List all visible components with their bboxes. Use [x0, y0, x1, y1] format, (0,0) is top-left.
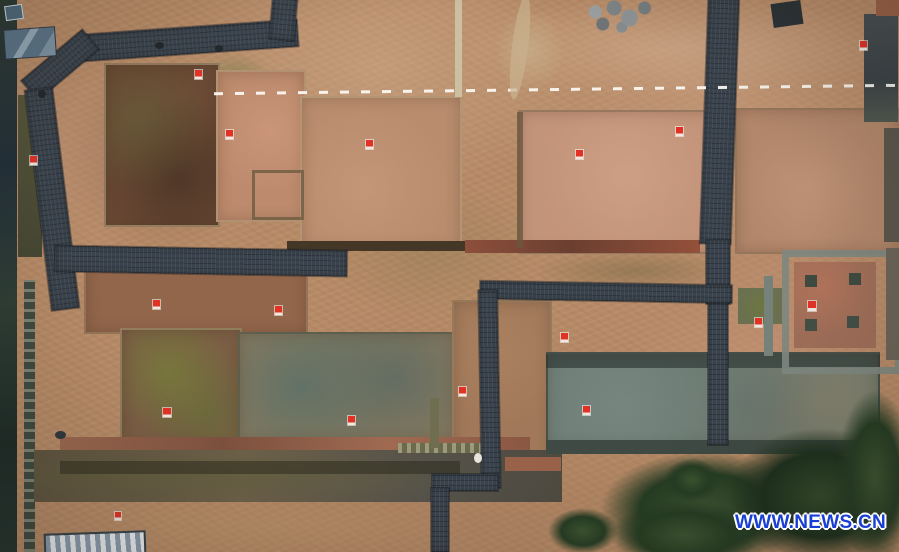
news-cn-watermark: WWW.NEWS.CN: [735, 512, 886, 534]
survey-flag: [275, 306, 282, 315]
survey-flag: [576, 150, 583, 159]
column-base: [847, 316, 859, 328]
survey-flag: [195, 70, 202, 79]
survey-flag: [226, 130, 233, 139]
person-at-junction: [38, 90, 46, 98]
dark-object: [55, 431, 66, 439]
rightedge-structure-mid: [884, 128, 899, 242]
rightedge-structure-low: [886, 248, 899, 360]
sign-board-large: [3, 26, 57, 60]
pit-top-far-right: [735, 108, 899, 254]
room-wall-vertical: [430, 398, 439, 448]
survey-flag: [115, 512, 121, 520]
dark-tarp: [770, 0, 803, 28]
wall-connector-vertical: [764, 276, 773, 356]
column-base: [805, 319, 817, 331]
brick-band-center: [505, 457, 561, 471]
walkway-bottom-vertical: [431, 488, 449, 552]
left-edge-vegetation-strip: [0, 0, 17, 552]
walkway-top-stub: [269, 0, 298, 41]
topright-brick-corner: [876, 0, 899, 16]
survey-flag: [755, 318, 762, 327]
vegetation-clump: [664, 458, 720, 502]
pit-top-center-right: [518, 110, 716, 254]
trench-inner-dark: [60, 461, 460, 474]
rightedge-structure-top: [864, 14, 898, 122]
survey-flag: [348, 416, 355, 425]
survey-flag: [583, 406, 590, 415]
sign-board-small: [4, 4, 24, 21]
survey-flag: [153, 300, 160, 309]
pit-bluegreen: [238, 332, 456, 442]
left-wall-speckled: [24, 280, 35, 552]
pit-upper-left-dark: [104, 63, 220, 227]
pit-moss: [120, 328, 242, 450]
survey-flag: [366, 140, 373, 149]
brick-wall-band-mid: [465, 240, 700, 253]
survey-flag: [459, 387, 466, 396]
survey-flag: [860, 41, 867, 50]
person-on-walkway: [155, 42, 164, 49]
stone-pile: [580, 0, 656, 36]
pit-upper-right: [300, 96, 462, 250]
survey-flag: [30, 156, 37, 165]
survey-flag: [808, 301, 816, 311]
walkway-mid-horizontal: [55, 245, 347, 276]
person-white-shirt: [474, 453, 482, 463]
person-on-walkway: [215, 45, 223, 52]
survey-flag: [561, 333, 568, 342]
survey-flag: [163, 408, 171, 417]
vegetation-clump: [548, 508, 618, 552]
column-base: [849, 273, 861, 285]
aerial-photo-archaeological-site: WWW.NEWS.CN: [0, 0, 899, 552]
survey-flag: [676, 127, 683, 136]
stone-wall-vertical: [455, 0, 462, 97]
pit-left-wall: [517, 112, 523, 248]
walkway-right-vertical-low: [708, 302, 728, 445]
striped-shelter: [44, 530, 147, 552]
inner-square-pit: [252, 170, 304, 220]
column-base: [805, 275, 817, 287]
